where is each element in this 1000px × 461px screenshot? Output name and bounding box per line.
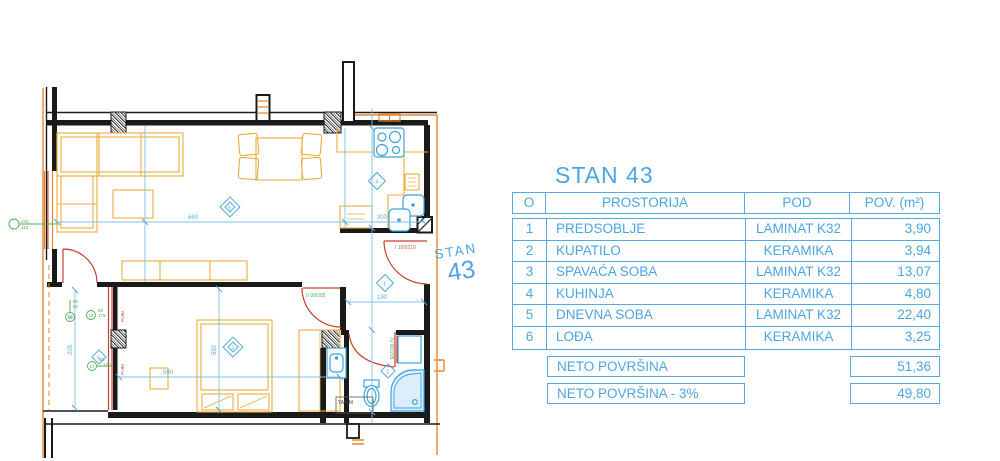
- marker-15: 15: [68, 315, 74, 320]
- room-marker-hall: 1: [377, 275, 394, 292]
- cell-floor: LAMINAT K32: [746, 305, 852, 326]
- svg-text:P=90: P=90: [120, 311, 125, 322]
- sofa: [57, 133, 183, 176]
- marker-17: 17: [90, 364, 96, 369]
- cell-no: 2: [513, 241, 547, 262]
- header-room: PROSTORIJA: [546, 193, 745, 213]
- cell-floor: KERAMIKA: [746, 241, 852, 262]
- marker-16: 16: [89, 313, 95, 318]
- dim-bed-width: 580: [212, 344, 218, 355]
- dim-bed-length: 590: [163, 370, 174, 376]
- apartment-annotation: STAN 43: [433, 240, 482, 288]
- room-marker-bedroom: 3: [223, 337, 243, 357]
- bath-sink: [327, 348, 346, 378]
- cell-no: 5: [513, 305, 547, 326]
- cell-room: LOĐA: [547, 327, 746, 349]
- summary-label: NETO POVRŠINA: [547, 356, 745, 377]
- dim-loggia-depth: 205: [68, 344, 74, 355]
- svg-text:2: 2: [386, 369, 389, 375]
- svg-text:175: 175: [103, 362, 111, 367]
- washing-machine: [397, 336, 421, 363]
- table-row: 5 DNEVNA SOBA LAMINAT K32 22,40: [513, 305, 939, 327]
- cell-floor: KERAMIKA: [746, 284, 852, 305]
- header-no: O: [513, 193, 546, 213]
- dim-living-width: 660: [188, 215, 199, 221]
- cell-area: 4,80: [852, 284, 939, 305]
- cell-area: 22,40: [852, 305, 939, 326]
- cell-room: PREDSOBLJE: [547, 219, 746, 240]
- table-row: 3 SPAVAĆA SOBA LAMINAT K32 13,07: [513, 262, 939, 284]
- cell-room: KUPATILO: [547, 241, 746, 262]
- column: [322, 330, 340, 348]
- svg-text:175: 175: [98, 313, 106, 318]
- header-floor: POD: [745, 193, 850, 213]
- table-row: 6 LOĐA KERAMIKA 3,25: [513, 327, 939, 349]
- cell-no: 4: [513, 284, 547, 305]
- dim-hall-width: 190: [377, 295, 388, 301]
- apartment-number: 43: [445, 255, 477, 287]
- coffee-table: [113, 190, 153, 218]
- chair: [301, 133, 322, 156]
- bedroom-door-label: II 90/205: [306, 293, 326, 299]
- cell-no: 6: [513, 327, 547, 349]
- floor-plan-sheet: TA/VM 660 300 190 590 580: [0, 0, 1000, 461]
- table-row: 1 PREDSOBLJE LAMINAT K32 3,90: [513, 219, 939, 241]
- cell-no: 3: [513, 262, 547, 283]
- bathroom-door-label: IV 80/205: [388, 338, 394, 360]
- table-row: 4 KUHINJA KERAMIKA 4,80: [513, 284, 939, 306]
- table-row: 2 KUPATILO KERAMIKA 3,94: [513, 241, 939, 263]
- table-header: O PROSTORIJA POD POV. (m²): [512, 192, 940, 214]
- room-marker-kitchen: 4: [369, 173, 386, 190]
- floor-plan-drawing: TA/VM 660 300 190 590 580: [0, 0, 505, 461]
- tv-dresser: [122, 261, 247, 280]
- column: [111, 112, 126, 133]
- summary-value: 49,80: [850, 383, 940, 404]
- bed: [197, 320, 272, 412]
- summary-value: 51,36: [850, 356, 940, 377]
- cell-area: 3,90: [852, 219, 939, 240]
- column: [324, 112, 341, 133]
- svg-text:1: 1: [383, 281, 386, 287]
- cooktop: [374, 128, 404, 157]
- table-body: 1 PREDSOBLJE LAMINAT K32 3,90 2 KUPATILO…: [512, 218, 940, 350]
- cell-floor: LAMINAT K32: [746, 262, 852, 283]
- cell-room: SPAVAĆA SOBA: [547, 262, 746, 283]
- svg-text:60: 60: [73, 304, 79, 309]
- cell-room: DNEVNA SOBA: [547, 305, 746, 326]
- window-size-label: 110: [21, 225, 29, 230]
- header-area: POV. (m²): [850, 193, 939, 213]
- column: [111, 330, 126, 348]
- svg-text:3: 3: [231, 345, 234, 351]
- window-size-label: 240: [21, 219, 29, 224]
- toilet: [364, 380, 379, 407]
- room-markers: 5 4 1 3 2 6: [92, 173, 395, 379]
- dim-kitchen-width: 300: [377, 215, 388, 221]
- table-title: STAN 43: [512, 163, 940, 187]
- entrance-door-label: I 100/210: [395, 245, 416, 251]
- fixtures: [327, 128, 424, 411]
- area-table: STAN 43 O PROSTORIJA POD POV. (m²) 1 PRE…: [512, 163, 940, 404]
- shower: [391, 370, 424, 411]
- summary-net-area-minus: NETO POVRŠINA - 3% 49,80: [512, 383, 940, 404]
- cell-floor: KERAMIKA: [746, 327, 852, 349]
- summary-net-area: NETO POVRŠINA 51,36: [512, 356, 940, 377]
- cell-area: 13,07: [852, 262, 939, 283]
- loggia-door: [63, 249, 97, 283]
- dining-table: [256, 138, 302, 180]
- svg-text:4: 4: [375, 179, 378, 185]
- cell-room: KUHINJA: [547, 284, 746, 305]
- cell-no: 1: [513, 219, 547, 240]
- cell-area: 3,94: [852, 241, 939, 262]
- ta-vm-label: TA/VM: [338, 400, 353, 406]
- svg-text:5: 5: [228, 205, 231, 211]
- summary-label: NETO POVRŠINA - 3%: [547, 383, 745, 404]
- cell-area: 3,25: [852, 327, 939, 349]
- room-marker-living: 5: [220, 197, 240, 217]
- window-markers: 240 110 15 15 16 17 6060 60175 60175: [9, 219, 112, 371]
- chair: [301, 157, 321, 179]
- cell-floor: LAMINAT K32: [746, 219, 852, 240]
- svg-text:P=90: P=90: [120, 364, 125, 375]
